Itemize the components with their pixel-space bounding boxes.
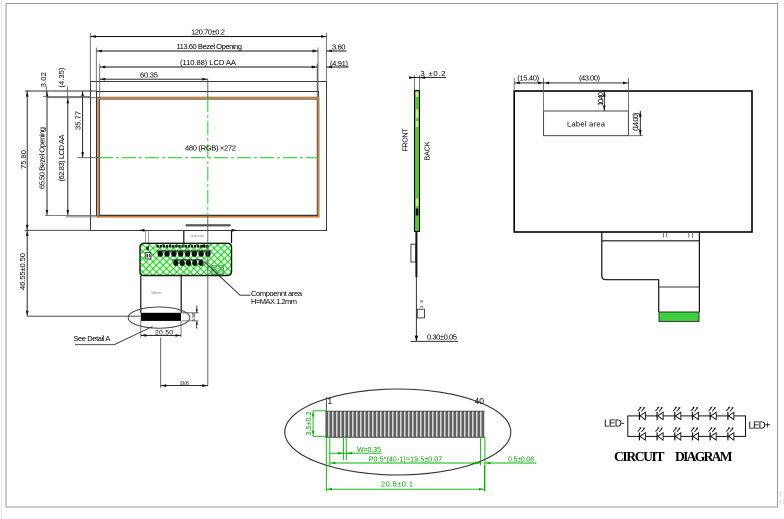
svg-text:DIAGRAM: DIAGRAM bbox=[675, 449, 733, 464]
svg-text:3.02: 3.02 bbox=[39, 72, 48, 87]
svg-text:20.5±0.1: 20.5±0.1 bbox=[381, 480, 413, 489]
svg-text:23.05: 23.05 bbox=[180, 380, 190, 386]
svg-text:40: 40 bbox=[475, 396, 485, 406]
svg-text:(15.40): (15.40) bbox=[517, 74, 539, 83]
svg-text:W=0.35: W=0.35 bbox=[357, 447, 381, 454]
svg-text:120.70±0.2: 120.70±0.2 bbox=[191, 27, 225, 36]
svg-text:20.50: 20.50 bbox=[155, 329, 173, 336]
svg-text:CIRCUIT: CIRCUIT bbox=[614, 449, 665, 464]
svg-text:3 ±0.2: 3 ±0.2 bbox=[421, 69, 446, 78]
svg-text:Braid tape: Braid tape bbox=[191, 234, 205, 238]
svg-text:1.50: 1.50 bbox=[191, 312, 196, 321]
svg-text:(110.88) LCD AA: (110.88) LCD AA bbox=[180, 58, 237, 67]
svg-text:(4.35): (4.35) bbox=[57, 67, 66, 87]
svg-text:10.40: 10.40 bbox=[596, 92, 605, 106]
svg-text:1.5: 1.5 bbox=[419, 300, 424, 308]
svg-text:(62.83) LCD AA: (62.83) LCD AA bbox=[57, 134, 66, 182]
svg-text:(4.91): (4.91) bbox=[330, 59, 348, 68]
svg-text:3.60: 3.60 bbox=[332, 43, 346, 52]
svg-text:1: 1 bbox=[328, 396, 333, 406]
svg-text:3.5±0.2: 3.5±0.2 bbox=[306, 411, 313, 435]
svg-text:480 (RGB) ×272: 480 (RGB) ×272 bbox=[185, 144, 236, 153]
svg-text:Stiffener: Stiffener bbox=[151, 291, 163, 295]
svg-text:T…: T… bbox=[779, 493, 784, 499]
svg-text:41: 41 bbox=[779, 500, 784, 506]
svg-text:46.55±0.50: 46.55±0.50 bbox=[18, 253, 27, 290]
svg-text:65.50 Bezel Opening: 65.50 Bezel Opening bbox=[38, 127, 47, 189]
svg-text:60.35: 60.35 bbox=[140, 70, 158, 79]
svg-text:LED-: LED- bbox=[604, 419, 625, 430]
svg-text:See Detail A: See Detail A bbox=[73, 334, 110, 343]
svg-text:LED+: LED+ bbox=[749, 420, 771, 431]
svg-text:BACK: BACK bbox=[423, 141, 432, 160]
svg-text:FRONT: FRONT bbox=[401, 128, 410, 152]
svg-text:H=MAX 1.2mm: H=MAX 1.2mm bbox=[251, 297, 297, 306]
svg-text:35.77: 35.77 bbox=[74, 111, 83, 130]
svg-text:P0.5*(40-1)=19.5±0.07: P0.5*(40-1)=19.5±0.07 bbox=[369, 457, 443, 464]
svg-text:0.5±0.08: 0.5±0.08 bbox=[508, 456, 534, 463]
svg-text:Label area: Label area bbox=[567, 119, 606, 128]
svg-text:(43.00): (43.00) bbox=[579, 74, 600, 83]
svg-text:(14.00): (14.00) bbox=[631, 112, 640, 131]
svg-text:75.80: 75.80 bbox=[19, 150, 28, 169]
svg-text:113.60 Bezel Opening: 113.60 Bezel Opening bbox=[177, 42, 243, 51]
svg-text:0.30±0.05: 0.30±0.05 bbox=[427, 333, 457, 342]
